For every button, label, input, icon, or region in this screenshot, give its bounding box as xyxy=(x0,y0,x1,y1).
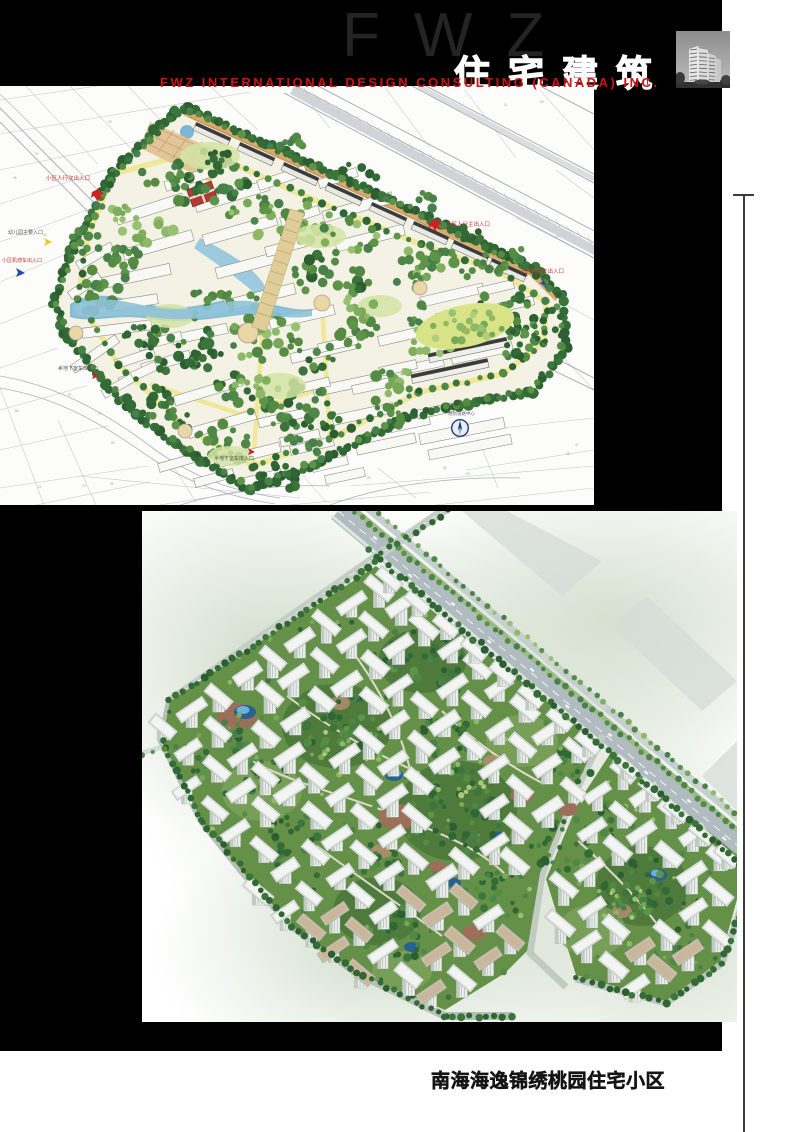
svg-text:21: 21 xyxy=(504,103,508,107)
svg-text:57: 57 xyxy=(68,393,72,397)
svg-text:56: 56 xyxy=(15,409,19,413)
svg-text:12: 12 xyxy=(38,485,42,489)
svg-text:半地下室车库入口: 半地下室车库入口 xyxy=(58,365,98,372)
svg-text:35: 35 xyxy=(110,482,114,486)
svg-text:10: 10 xyxy=(82,484,86,488)
svg-text:小区机动车出入口: 小区机动车出入口 xyxy=(520,267,564,275)
svg-text:59: 59 xyxy=(111,441,115,445)
svg-text:29: 29 xyxy=(108,120,112,124)
svg-text:69: 69 xyxy=(443,466,447,470)
svg-text:69: 69 xyxy=(540,100,544,104)
svg-text:48: 48 xyxy=(566,452,570,456)
svg-text:小区人行主出入口: 小区人行主出入口 xyxy=(446,220,490,228)
svg-text:小区人行次出入口: 小区人行次出入口 xyxy=(46,174,90,182)
svg-text:47: 47 xyxy=(575,443,579,447)
svg-text:25: 25 xyxy=(367,476,371,480)
svg-text:幼儿园主要入口: 幼儿园主要入口 xyxy=(8,229,43,236)
svg-text:57: 57 xyxy=(35,152,39,156)
svg-text:半地下室车库入口: 半地下室车库入口 xyxy=(214,455,254,462)
svg-text:规划道路中心: 规划道路中心 xyxy=(448,410,475,417)
svg-text:93: 93 xyxy=(466,472,470,476)
svg-text:45: 45 xyxy=(13,176,17,180)
svg-text:49: 49 xyxy=(43,233,47,237)
svg-text:小区机动车出入口: 小区机动车出入口 xyxy=(2,257,42,264)
